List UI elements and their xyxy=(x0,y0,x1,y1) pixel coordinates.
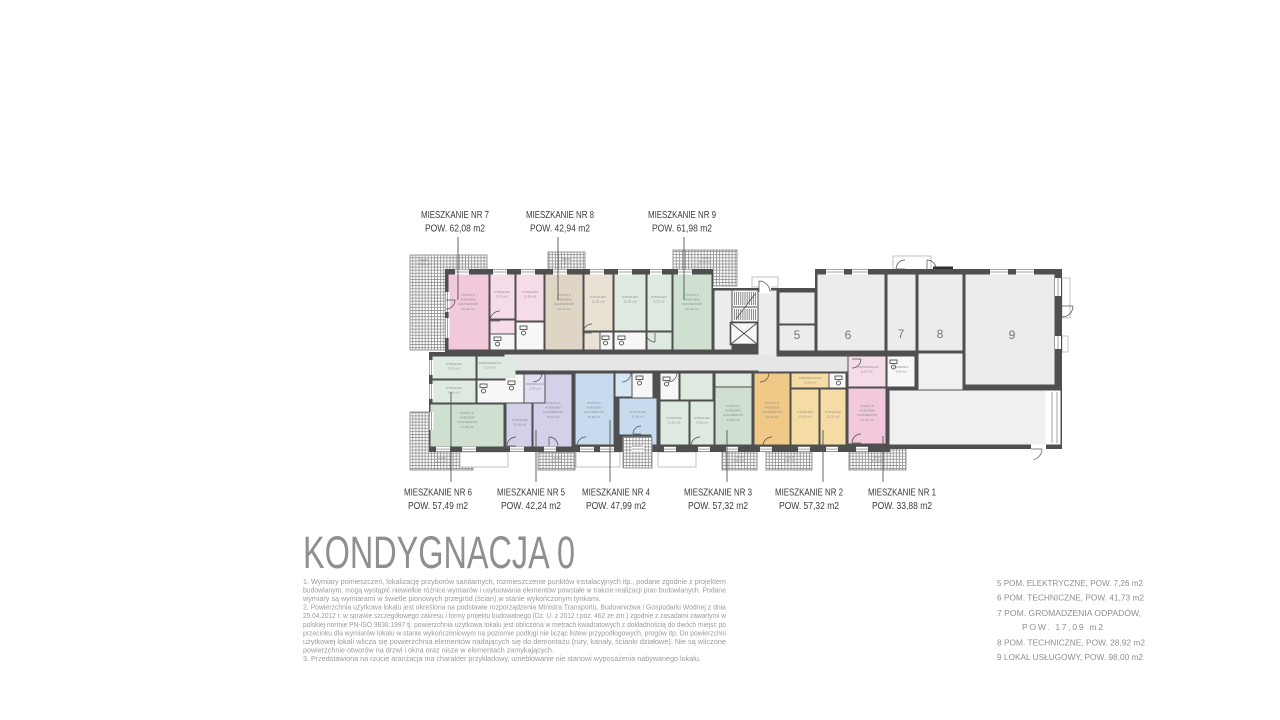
svg-text:5: 5 xyxy=(794,328,801,342)
svg-text:KUCHENNYM: KUCHENNYM xyxy=(857,413,877,417)
svg-text:ANEKSEM: ANEKSEM xyxy=(459,416,475,420)
svg-text:SYPIALNIA: SYPIALNIA xyxy=(630,410,647,414)
svg-text:9,72 m2: 9,72 m2 xyxy=(653,300,664,304)
svg-text:POW. 61,98 m2: POW. 61,98 m2 xyxy=(652,224,712,235)
svg-text:21,68 m2: 21,68 m2 xyxy=(461,425,474,429)
svg-text:KOMUNIKACJA: KOMUNIKACJA xyxy=(524,382,547,386)
svg-text:POW. 57,32 m2: POW. 57,32 m2 xyxy=(688,501,748,512)
svg-text:POW. 47,99 m2: POW. 47,99 m2 xyxy=(586,501,646,512)
svg-text:5,19 m2: 5,19 m2 xyxy=(484,366,495,370)
svg-text:5 POM. ELEKTRYCZNE, POW. 7,26: 5 POM. ELEKTRYCZNE, POW. 7,26 m2 xyxy=(997,578,1143,588)
svg-text:7: 7 xyxy=(898,327,905,341)
svg-text:8: 8 xyxy=(937,327,944,341)
svg-text:23,37 m2: 23,37 m2 xyxy=(558,307,571,311)
svg-text:POW. 17,09 m2: POW. 17,09 m2 xyxy=(1022,622,1105,632)
svg-text:POKÓJ Z: POKÓJ Z xyxy=(557,292,570,297)
svg-text:ANEKSEM: ANEKSEM xyxy=(460,298,476,302)
svg-text:6: 6 xyxy=(845,328,852,342)
svg-text:9,10 m2: 9,10 m2 xyxy=(436,460,447,464)
svg-text:KOMUNIKACJA: KOMUNIKACJA xyxy=(856,365,879,369)
svg-text:POW. 42,24 m2: POW. 42,24 m2 xyxy=(501,501,561,512)
svg-text:3. Przedstawiona na rzucie ara: 3. Przedstawiona na rzucie aranżacja ma … xyxy=(303,654,701,663)
svg-text:POKÓJ Z: POKÓJ Z xyxy=(860,403,873,408)
svg-text:POKÓJ Z: POKÓJ Z xyxy=(460,410,473,415)
svg-text:11,00 m2: 11,00 m2 xyxy=(524,295,537,299)
svg-text:MIESZKANIE NR 9: MIESZKANIE NR 9 xyxy=(648,210,716,221)
svg-text:SYPIALNIA: SYPIALNIA xyxy=(590,295,607,299)
svg-text:4,50 m2: 4,50 m2 xyxy=(551,460,562,464)
svg-text:POKÓJ Z: POKÓJ Z xyxy=(461,292,474,297)
svg-text:POW. 57,32 m2: POW. 57,32 m2 xyxy=(779,501,839,512)
svg-text:POW. 42,94 m2: POW. 42,94 m2 xyxy=(530,224,590,235)
svg-text:23,96 m2: 23,96 m2 xyxy=(727,418,740,422)
svg-text:11,38 m2: 11,38 m2 xyxy=(632,415,645,419)
svg-text:4,30 m2: 4,30 m2 xyxy=(561,261,572,265)
svg-text:KUCHENNYM: KUCHENNYM xyxy=(458,302,478,306)
svg-text:12,69 m2: 12,69 m2 xyxy=(799,415,812,419)
svg-text:SYPIALNIA: SYPIALNIA xyxy=(512,418,529,422)
svg-text:26,84 m2: 26,84 m2 xyxy=(588,415,601,419)
svg-text:KUCHENNYM: KUCHENNYM xyxy=(723,413,743,417)
svg-text:MIESZKANIE NR 4: MIESZKANIE NR 4 xyxy=(582,488,650,499)
svg-text:6,45 m2: 6,45 m2 xyxy=(804,381,815,385)
svg-text:POKÓJ Z: POKÓJ Z xyxy=(587,400,600,405)
svg-text:9,60 m2: 9,60 m2 xyxy=(734,459,745,463)
svg-text:11,03 m2: 11,03 m2 xyxy=(514,423,527,427)
svg-text:8,40 m2: 8,40 m2 xyxy=(784,459,795,463)
svg-text:MIESZKANIE NR 6: MIESZKANIE NR 6 xyxy=(404,488,472,499)
svg-text:ANEKSEM: ANEKSEM xyxy=(684,298,700,302)
svg-text:SYPIALNIA: SYPIALNIA xyxy=(694,416,711,420)
svg-text:KUCHENNYM: KUCHENNYM xyxy=(543,410,563,414)
svg-text:POKÓJ Z: POKÓJ Z xyxy=(765,400,778,405)
svg-text:SYPIALNIA: SYPIALNIA xyxy=(446,362,463,366)
svg-text:MIESZKANIE NR 1: MIESZKANIE NR 1 xyxy=(868,488,936,499)
svg-text:25,34 m2: 25,34 m2 xyxy=(686,307,699,311)
svg-text:9: 9 xyxy=(1009,328,1016,342)
svg-text:ANEKSEM: ANEKSEM xyxy=(545,406,561,410)
svg-text:SYPIALNIA: SYPIALNIA xyxy=(522,290,539,294)
svg-text:8,10 m2: 8,10 m2 xyxy=(872,459,883,463)
svg-text:9,72 m2: 9,72 m2 xyxy=(496,295,507,299)
svg-text:MIESZKANIE NR 8: MIESZKANIE NR 8 xyxy=(526,210,594,221)
svg-text:ANEKSEM: ANEKSEM xyxy=(725,409,741,413)
svg-text:KUCHENNYM: KUCHENNYM xyxy=(457,420,477,424)
svg-text:8 POM. TECHNICZNE, POW. 28,92: 8 POM. TECHNICZNE, POW. 28,92 m2 xyxy=(997,638,1145,648)
svg-text:KUCHENNYM: KUCHENNYM xyxy=(762,410,782,414)
svg-text:ŁAZIENKA: ŁAZIENKA xyxy=(894,365,910,369)
svg-text:25,34 m2: 25,34 m2 xyxy=(462,307,475,311)
svg-text:31,43 m2: 31,43 m2 xyxy=(766,415,779,419)
svg-text:20,76 m2: 20,76 m2 xyxy=(861,418,874,422)
svg-text:SYPIALNIA: SYPIALNIA xyxy=(825,410,842,414)
svg-text:8,85 m2: 8,85 m2 xyxy=(696,421,707,425)
svg-text:KOMUNIKACJA: KOMUNIKACJA xyxy=(479,361,502,365)
svg-text:4,60 m2: 4,60 m2 xyxy=(895,370,906,374)
svg-text:POW. 57,49 m2: POW. 57,49 m2 xyxy=(408,501,468,512)
svg-text:POW. 62,08 m2: POW. 62,08 m2 xyxy=(425,224,485,235)
svg-text:MIESZKANIE NR 2: MIESZKANIE NR 2 xyxy=(775,488,843,499)
svg-text:POKÓJ Z: POKÓJ Z xyxy=(546,400,559,405)
svg-text:POKÓJ Z: POKÓJ Z xyxy=(685,292,698,297)
svg-text:KONDYGNACJA 0: KONDYGNACJA 0 xyxy=(303,527,575,578)
svg-text:ANEKSEM: ANEKSEM xyxy=(764,406,780,410)
svg-text:KOMUNIKACJA: KOMUNIKACJA xyxy=(799,376,822,380)
svg-text:6 POM. TECHNICZNE, POW. 41,73: 6 POM. TECHNICZNE, POW. 41,73 m2 xyxy=(997,593,1144,603)
svg-text:ANEKSEM: ANEKSEM xyxy=(556,298,572,302)
svg-text:11,03 m2: 11,03 m2 xyxy=(624,300,637,304)
svg-text:12,20 m2: 12,20 m2 xyxy=(827,415,840,419)
svg-text:8,07 m2: 8,07 m2 xyxy=(861,370,872,374)
svg-text:MIESZKANIE NR 3: MIESZKANIE NR 3 xyxy=(684,488,752,499)
svg-text:9 LOKAL USŁUGOWY, POW. 98,00 m: 9 LOKAL USŁUGOWY, POW. 98,00 m2 xyxy=(997,652,1143,662)
svg-text:9,36 m2: 9,36 m2 xyxy=(448,391,459,395)
svg-text:SYPIALNIA: SYPIALNIA xyxy=(797,410,814,414)
svg-text:7 POM. GROMADZENIA ODPADÓW,: 7 POM. GROMADZENIA ODPADÓW, xyxy=(997,608,1141,618)
svg-text:9,22 m2: 9,22 m2 xyxy=(448,367,459,371)
svg-text:11,03 m2: 11,03 m2 xyxy=(592,300,605,304)
svg-text:MIESZKANIE NR 5: MIESZKANIE NR 5 xyxy=(497,488,565,499)
svg-text:11,51 m2: 11,51 m2 xyxy=(668,421,681,425)
svg-text:KUCHENNYM: KUCHENNYM xyxy=(682,302,702,306)
svg-text:33,68 m2: 33,68 m2 xyxy=(418,262,430,266)
svg-text:KUCHENNYM: KUCHENNYM xyxy=(554,302,574,306)
svg-text:1,36 m2: 1,36 m2 xyxy=(529,387,540,391)
svg-text:22,67 m2: 22,67 m2 xyxy=(547,415,560,419)
svg-text:POKÓJ Z: POKÓJ Z xyxy=(726,403,739,408)
svg-text:POW. 33,88 m2: POW. 33,88 m2 xyxy=(872,501,932,512)
svg-text:32,70 m2: 32,70 m2 xyxy=(699,260,711,264)
svg-text:SYPIALNIA: SYPIALNIA xyxy=(446,386,463,390)
svg-text:SYPIALNIA: SYPIALNIA xyxy=(494,290,511,294)
svg-text:ANEKSEM: ANEKSEM xyxy=(859,409,875,413)
svg-text:KUCHENNYM: KUCHENNYM xyxy=(584,410,604,414)
svg-text:SYPIALNIA: SYPIALNIA xyxy=(666,416,683,420)
svg-text:SYPIALNIA: SYPIALNIA xyxy=(622,295,639,299)
svg-text:ANEKSEM: ANEKSEM xyxy=(586,406,602,410)
svg-text:MIESZKANIE NR 7: MIESZKANIE NR 7 xyxy=(421,210,489,221)
svg-text:SYPIALNIA: SYPIALNIA xyxy=(651,295,668,299)
